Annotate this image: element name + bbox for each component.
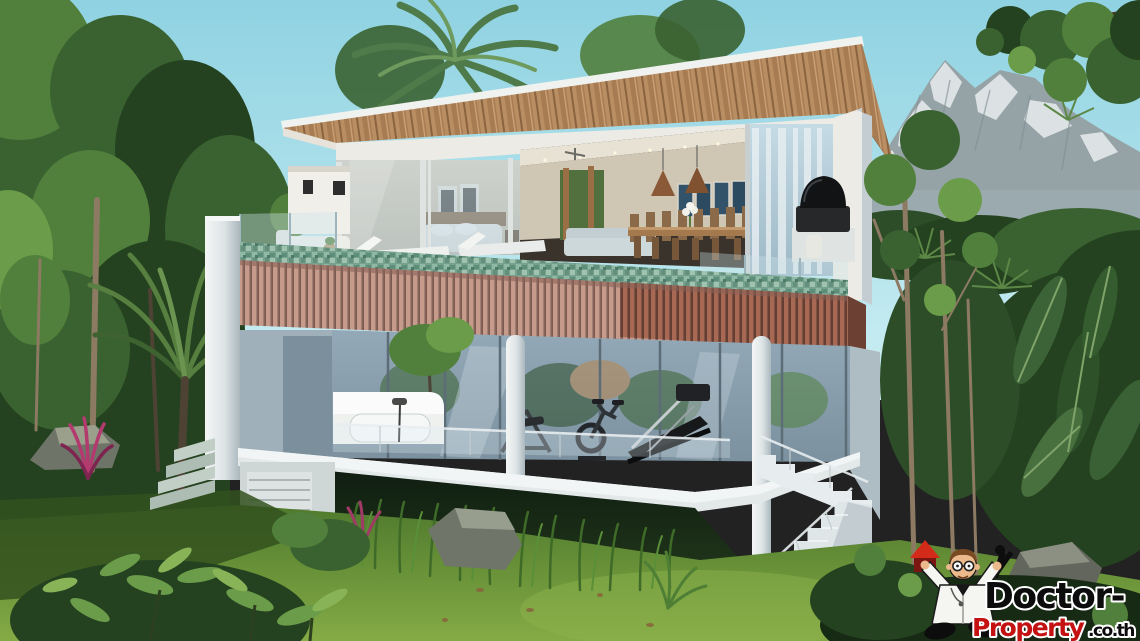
villa-render-image: Doctor- Property .co.th	[0, 0, 1140, 641]
watermark-line2-red: Property	[972, 613, 1084, 641]
living-dining	[520, 128, 758, 268]
scene-canvas: Doctor- Property .co.th	[0, 0, 1140, 641]
right-side-wall	[850, 346, 880, 520]
bedroom-window	[336, 158, 520, 255]
watermark-line1: Doctor-	[984, 576, 1124, 617]
watermark-line2-suffix: .co.th	[1088, 621, 1134, 641]
